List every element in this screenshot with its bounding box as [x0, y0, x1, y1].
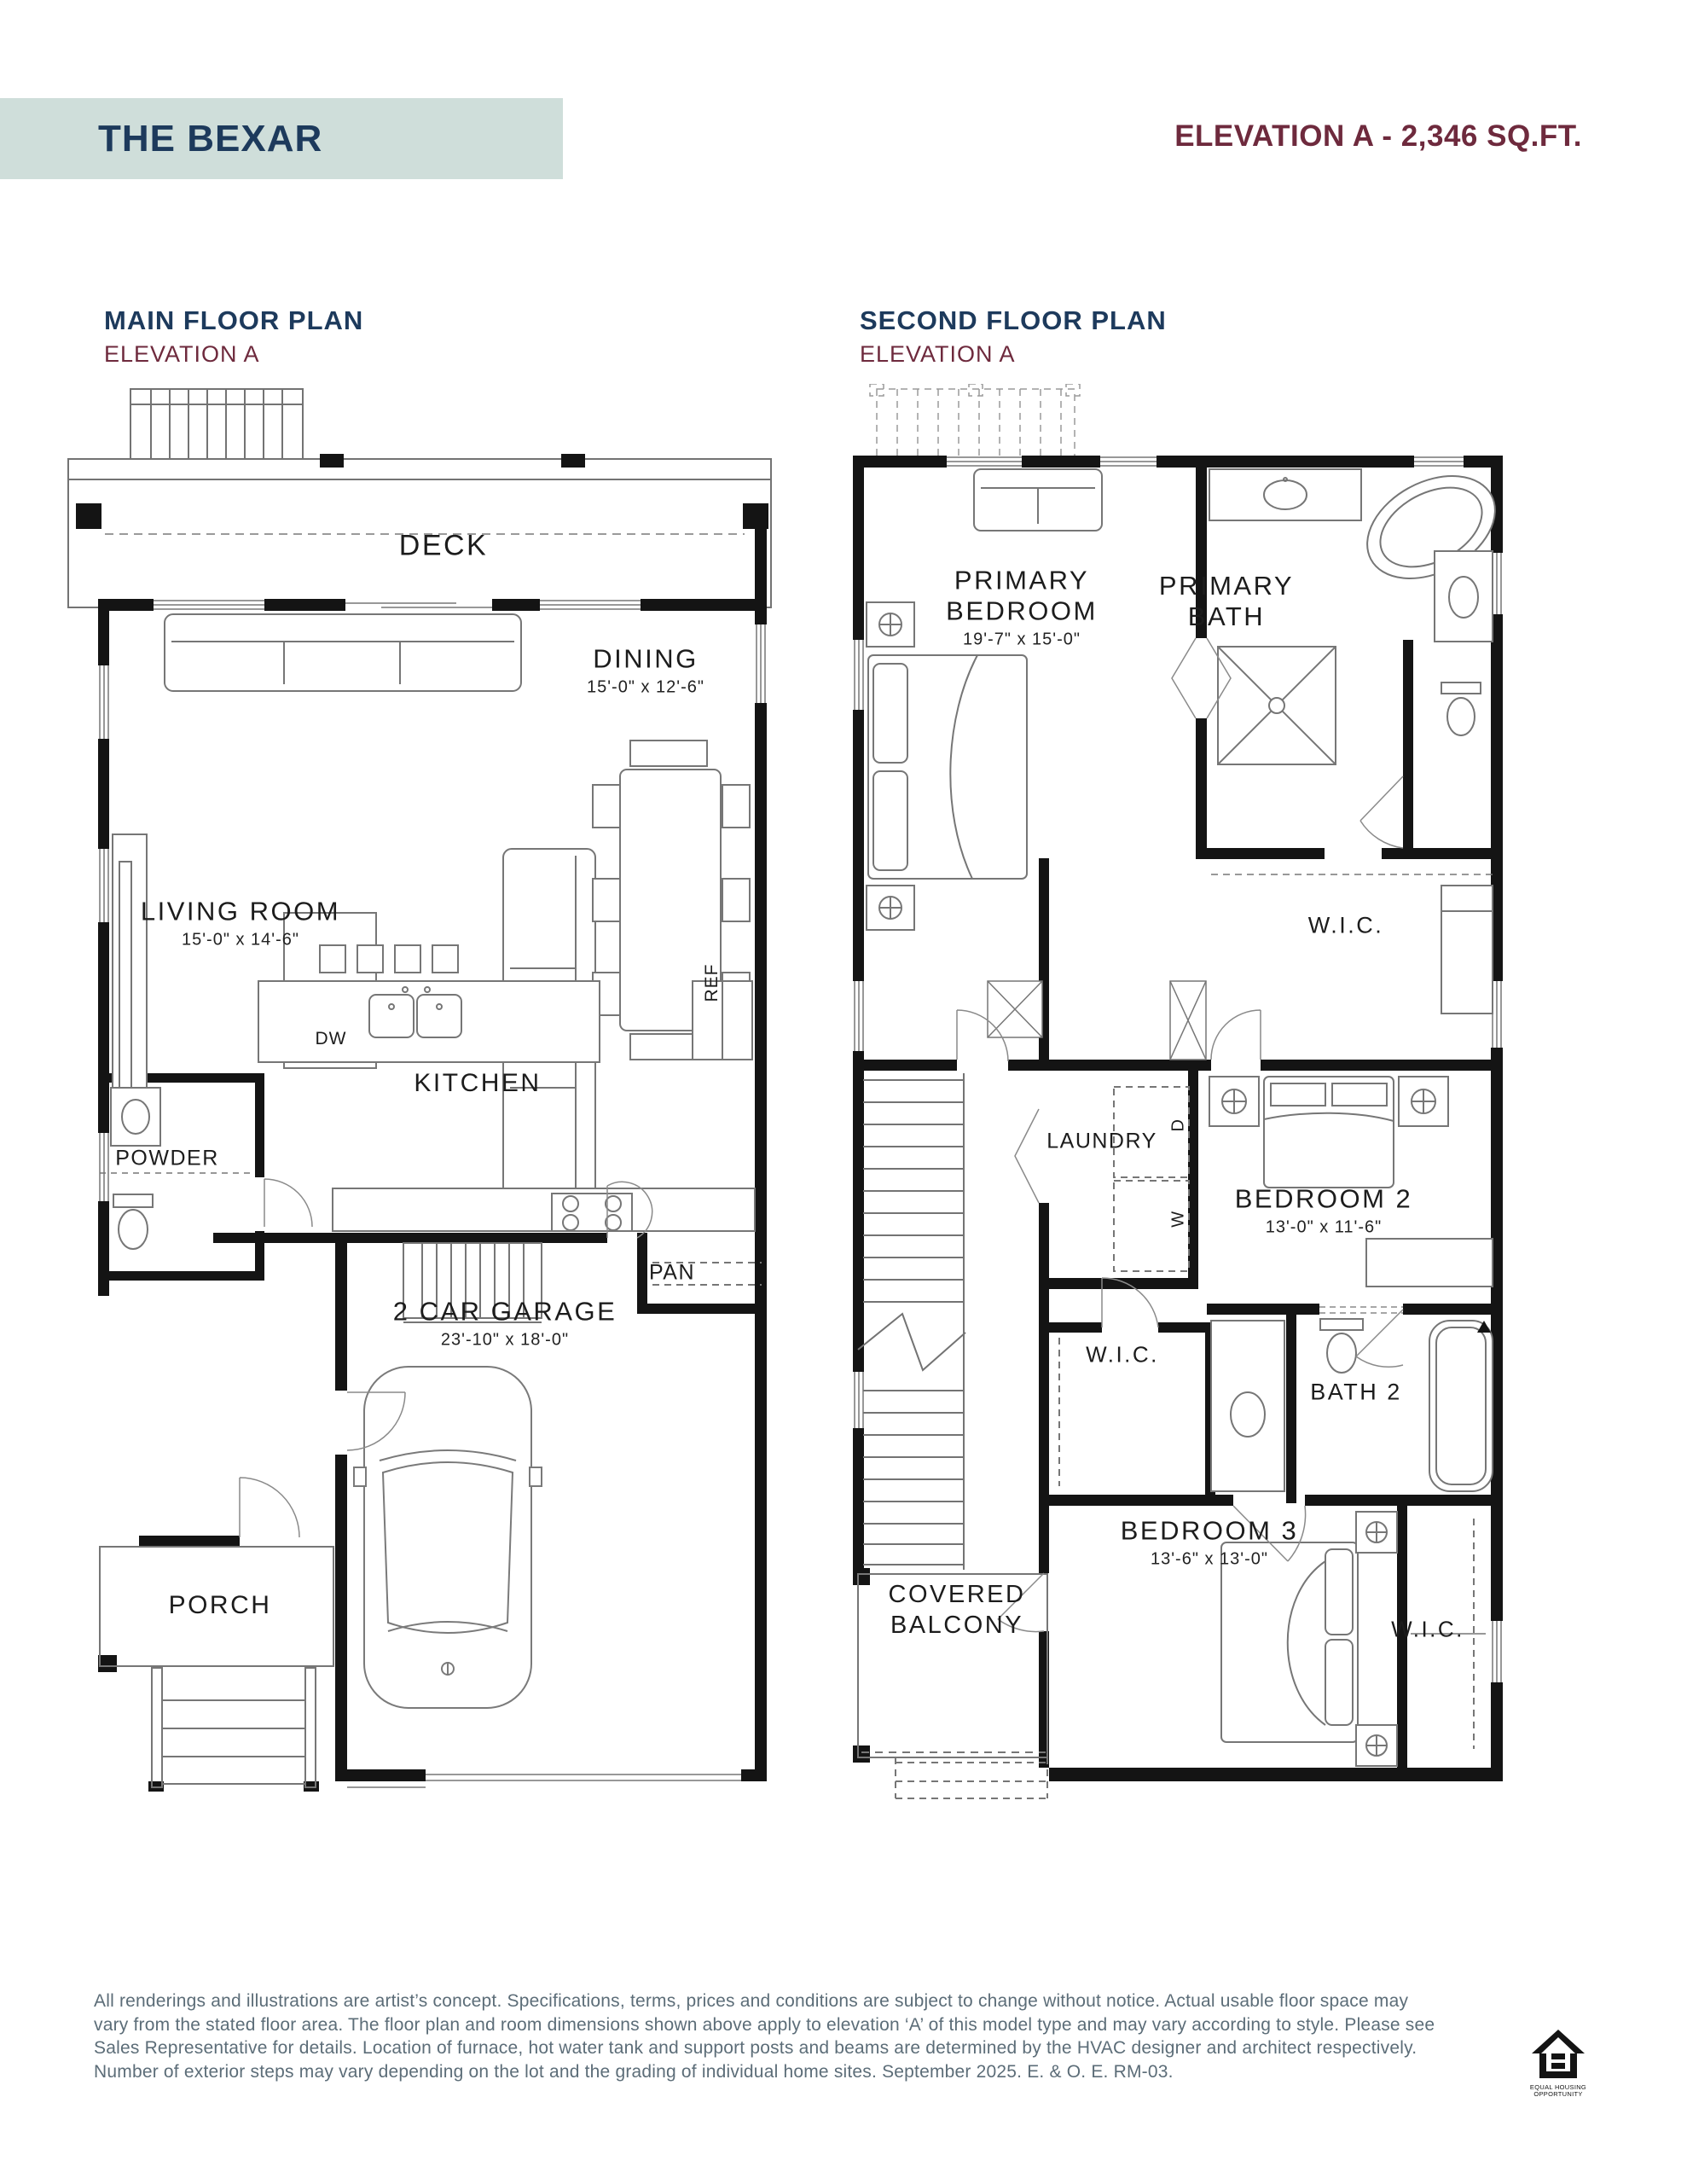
plan-name: THE BEXAR	[98, 118, 322, 160]
car	[354, 1367, 542, 1708]
closets	[988, 981, 1206, 1060]
main-floor-title: MAIN FLOOR PLAN	[104, 305, 363, 336]
disclaimer-line: Sales Representative for details. Locati…	[94, 2036, 1527, 2060]
plan-name-banner: THE BEXAR	[0, 98, 563, 179]
label-fridge: REF	[702, 964, 722, 1002]
room-label-covered-balcony: COVERED BALCONY	[889, 1579, 1026, 1641]
second-floor-title: SECOND FLOOR PLAN	[860, 305, 1167, 336]
second-floor-subtitle: ELEVATION A	[860, 341, 1016, 368]
room-label-pantry: PAN	[649, 1261, 695, 1286]
stairwell	[858, 1073, 965, 1570]
equal-housing-logo: EQUAL HOUSING OPPORTUNITY	[1528, 2029, 1588, 2098]
label-dryer: D	[1169, 1118, 1189, 1132]
room-label-living-room: LIVING ROOM 15'-0" x 14'-6"	[141, 897, 340, 950]
room-label-bedroom3: BEDROOM 3 13'-6" x 13'-0"	[1121, 1516, 1299, 1570]
elevation-info: ELEVATION A - 2,346 SQ.FT.	[1174, 119, 1582, 154]
room-label-bath2: BATH 2	[1310, 1380, 1402, 1406]
disclaimer-line: vary from the stated floor area. The flo…	[94, 2013, 1527, 2037]
room-label-primary-bath: PRIMARY BATH	[1159, 571, 1294, 632]
equal-housing-text-line2: OPPORTUNITY	[1528, 2091, 1588, 2098]
room-label-powder: POWDER	[115, 1147, 219, 1171]
room-label-laundry: LAUNDRY	[1046, 1130, 1157, 1154]
room-label-deck: DECK	[399, 530, 488, 563]
room-label-dining: DINING 15'-0" x 12'-6"	[587, 644, 704, 698]
room-label-garage: 2 CAR GARAGE 23'-10" x 18'-0"	[393, 1297, 617, 1350]
disclaimer-line: Number of exterior steps may vary depend…	[94, 2060, 1527, 2084]
room-label-bedroom2: BEDROOM 2 13'-0" x 11'-6"	[1235, 1184, 1413, 1238]
equal-housing-house-icon	[1531, 2029, 1586, 2080]
label-washer: W	[1169, 1209, 1189, 1227]
main-floor-subtitle: ELEVATION A	[104, 341, 260, 368]
disclaimer-line: All renderings and illustrations are art…	[94, 1989, 1527, 2013]
room-label-wic-primary: W.I.C.	[1308, 913, 1384, 939]
floor-plan-sheet: THE BEXAR ELEVATION A - 2,346 SQ.FT. MAI…	[0, 0, 1687, 2184]
disclaimer: All renderings and illustrations are art…	[94, 1989, 1527, 2083]
room-label-wic-bedroom2: W.I.C.	[1086, 1342, 1159, 1368]
room-label-primary-bedroom: PRIMARY BEDROOM 19'-7" x 15'-0"	[946, 566, 1098, 650]
ghost-deck	[870, 384, 1080, 457]
room-label-wic-bedroom3: W.I.C.	[1391, 1617, 1464, 1643]
deck-outline	[68, 389, 771, 607]
room-label-porch: PORCH	[169, 1591, 272, 1620]
label-dishwasher: DW	[316, 1029, 347, 1049]
room-label-kitchen: KITCHEN	[414, 1069, 541, 1098]
